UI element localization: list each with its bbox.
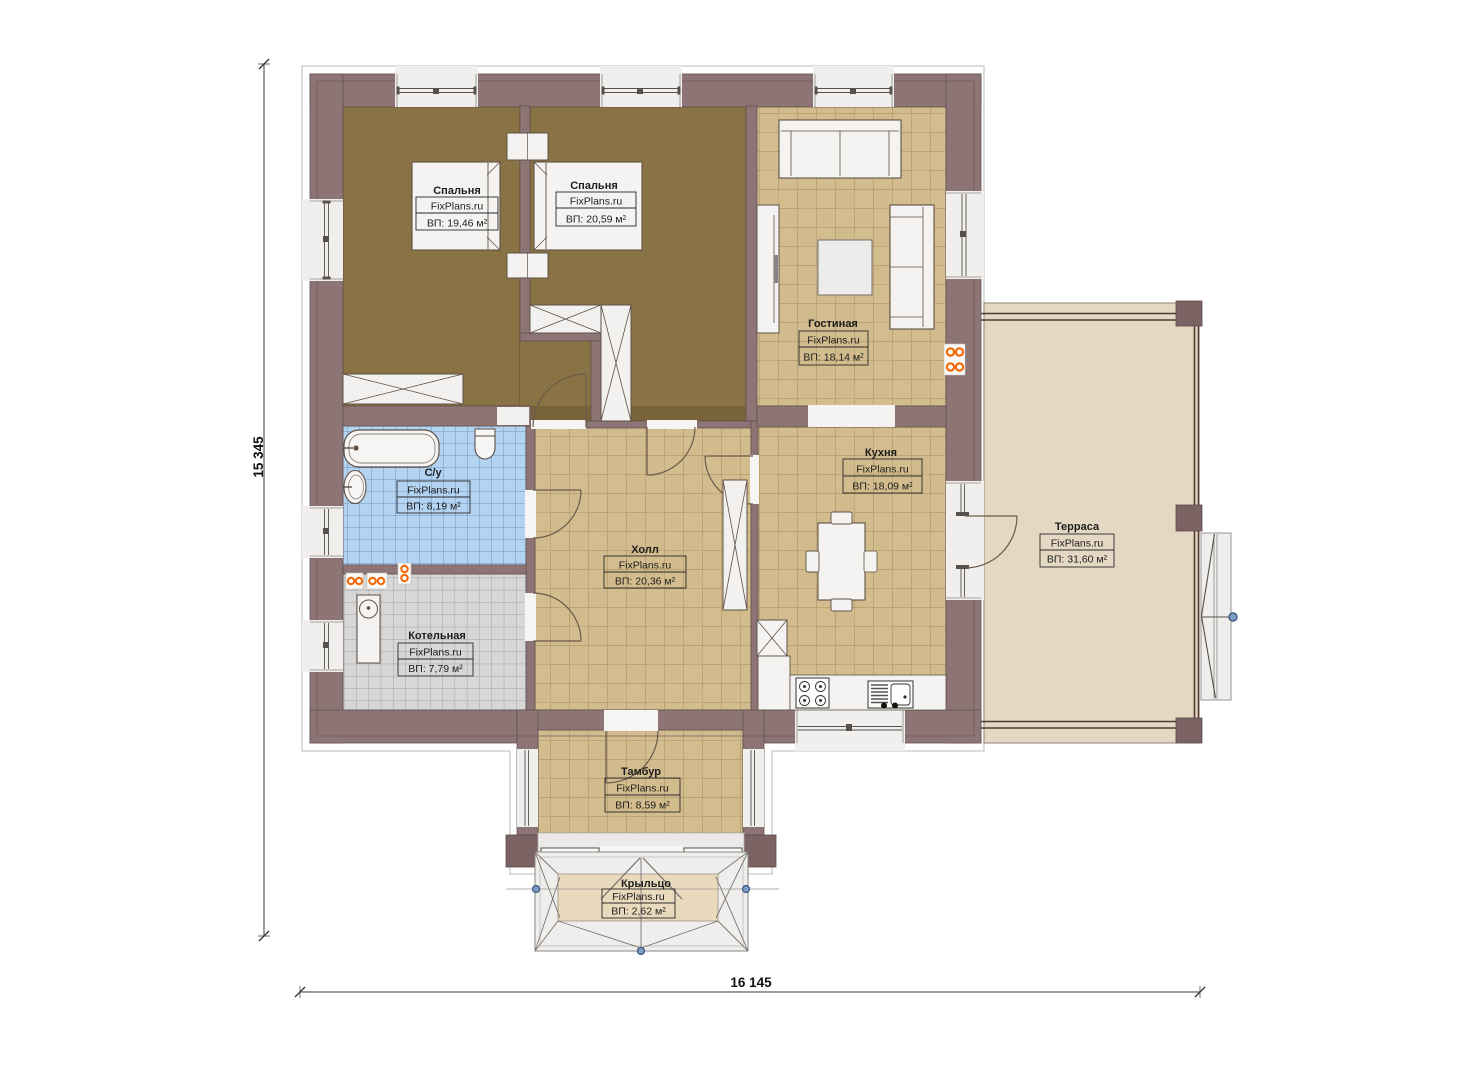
svg-text:Крыльцо: Крыльцо [621,878,671,890]
svg-text:Спальня: Спальня [433,185,481,197]
svg-text:Тамбур: Тамбур [621,766,661,778]
svg-text:FixPlans.ru: FixPlans.ru [407,485,460,497]
svg-text:ВП: 7,79 м²: ВП: 7,79 м² [408,663,463,675]
svg-text:FixPlans.ru: FixPlans.ru [409,647,462,659]
svg-text:15 345: 15 345 [251,436,266,478]
svg-text:ВП: 8,59 м²: ВП: 8,59 м² [615,800,670,812]
svg-text:ВП: 31,60 м²: ВП: 31,60 м² [1047,554,1108,566]
svg-text:FixPlans.ru: FixPlans.ru [431,201,484,213]
svg-text:ВП: 18,14 м²: ВП: 18,14 м² [803,352,864,364]
svg-text:С/у: С/у [424,467,442,479]
svg-text:Гостиная: Гостиная [808,318,858,330]
svg-text:Котельная: Котельная [408,630,466,642]
svg-text:FixPlans.ru: FixPlans.ru [570,196,623,208]
svg-text:FixPlans.ru: FixPlans.ru [619,560,672,572]
svg-text:ВП: 20,59 м²: ВП: 20,59 м² [566,214,627,226]
svg-text:FixPlans.ru: FixPlans.ru [612,891,665,903]
svg-text:FixPlans.ru: FixPlans.ru [616,783,669,795]
svg-text:ВП: 18,09 м²: ВП: 18,09 м² [852,481,913,493]
svg-text:ВП: 8,19 м²: ВП: 8,19 м² [406,501,461,513]
svg-text:FixPlans.ru: FixPlans.ru [807,335,860,347]
svg-text:Спальня: Спальня [570,180,618,192]
svg-text:16 145: 16 145 [730,975,772,990]
svg-text:ВП: 20,36 м²: ВП: 20,36 м² [615,576,676,588]
svg-text:ВП: 2,62 м²: ВП: 2,62 м² [611,906,666,918]
svg-text:ВП: 19,46 м²: ВП: 19,46 м² [427,218,488,230]
svg-text:FixPlans.ru: FixPlans.ru [856,464,909,476]
svg-text:Холл: Холл [631,544,659,556]
svg-text:Кухня: Кухня [865,447,897,459]
svg-text:Терраса: Терраса [1055,521,1100,533]
svg-text:FixPlans.ru: FixPlans.ru [1051,538,1104,550]
